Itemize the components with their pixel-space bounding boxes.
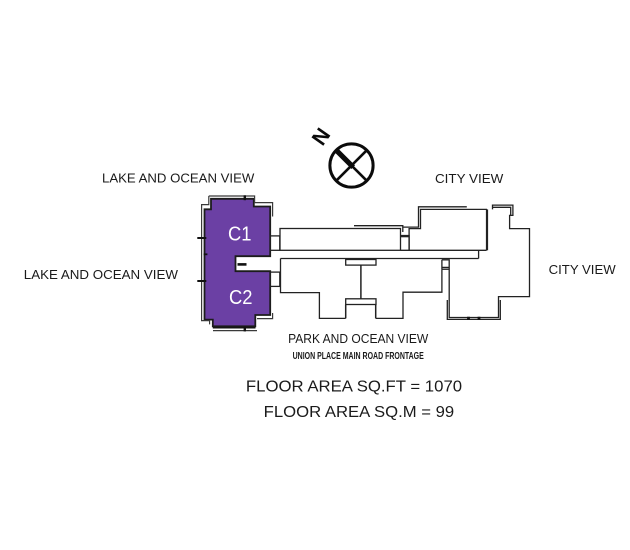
svg-text:FLOOR AREA SQ.FT = 1070: FLOOR AREA SQ.FT = 1070 xyxy=(246,378,462,395)
svg-text:CITY VIEW: CITY VIEW xyxy=(435,172,503,186)
svg-text:CITY VIEW: CITY VIEW xyxy=(549,263,616,277)
svg-text:UNION PLACE MAIN ROAD FRONTAGE: UNION PLACE MAIN ROAD FRONTAGE xyxy=(293,351,424,362)
svg-text:LAKE AND OCEAN VIEW: LAKE AND OCEAN VIEW xyxy=(24,268,178,282)
svg-text:C2: C2 xyxy=(229,286,253,309)
svg-text:N: N xyxy=(308,124,336,150)
svg-text:FLOOR AREA SQ.M = 99: FLOOR AREA SQ.M = 99 xyxy=(264,404,455,421)
svg-text:LAKE AND OCEAN VIEW: LAKE AND OCEAN VIEW xyxy=(102,172,254,186)
svg-text:PARK AND OCEAN VIEW: PARK AND OCEAN VIEW xyxy=(288,332,428,346)
svg-text:C1: C1 xyxy=(228,222,252,245)
